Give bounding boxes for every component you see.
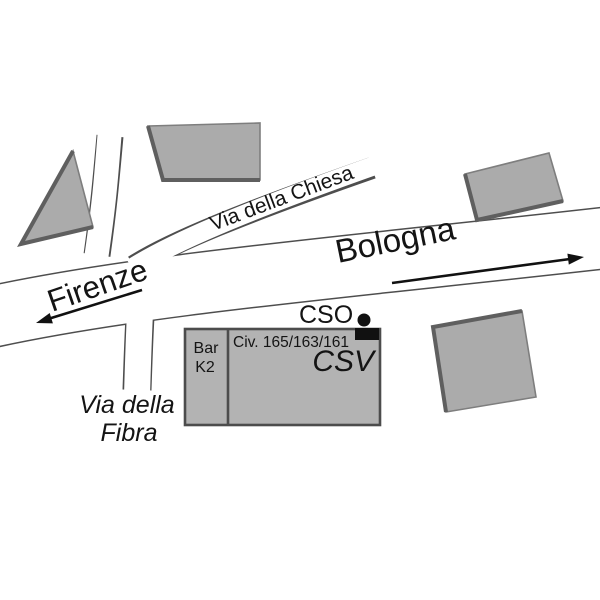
door-marker [355, 328, 379, 340]
dot-marker [358, 314, 371, 327]
label-via-della-fibra-line2: Fibra [101, 419, 158, 447]
label-bar-line1: Bar [194, 340, 220, 357]
building-trapezoid [148, 123, 260, 180]
road-north [96, 129, 110, 259]
map-canvas: Firenze Bologna Via della Chiesa Via del… [0, 0, 600, 600]
label-cso: CSO [299, 301, 353, 329]
sketch-map: Firenze Bologna Via della Chiesa Via del… [0, 0, 600, 600]
label-csv: CSV [312, 345, 377, 378]
road-via-della-fibra [137, 292, 141, 396]
label-via-della-fibra-line1: Via della [79, 391, 175, 419]
label-bar-line2: K2 [195, 359, 215, 376]
cso-marker [355, 314, 379, 341]
